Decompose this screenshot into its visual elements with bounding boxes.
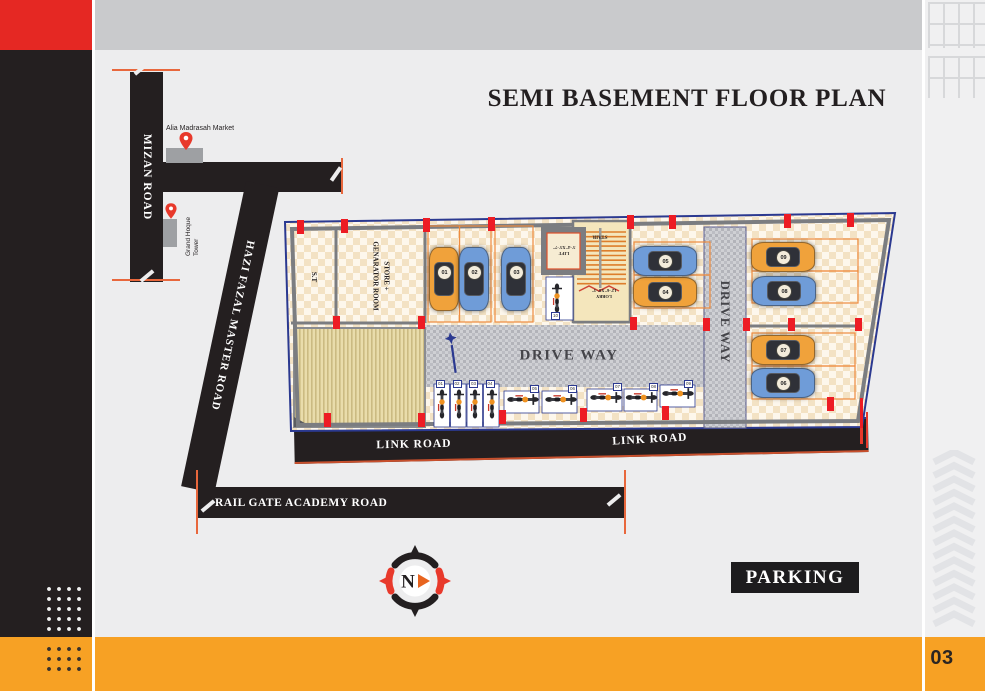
parking-badge: PARKING bbox=[731, 562, 859, 593]
car-ramp bbox=[294, 328, 425, 427]
bike-01 bbox=[435, 386, 449, 429]
road-end-marker bbox=[341, 158, 343, 194]
grid-pattern-top bbox=[928, 2, 985, 48]
car-number: 01 bbox=[437, 265, 452, 280]
bike-number: 08 bbox=[649, 383, 658, 391]
bike-07 bbox=[589, 391, 623, 409]
link-road-label-left: LINK ROAD bbox=[376, 437, 451, 451]
divider-line-left bbox=[92, 0, 95, 691]
room-label-store-line2: GENARATOR ROOM bbox=[371, 241, 382, 310]
bike-number: 05 bbox=[530, 385, 539, 393]
bike-09 bbox=[661, 387, 695, 405]
driveway-label-horizontal: DRIVE WAY bbox=[520, 348, 619, 365]
lobby-label-line2: 12'-6"X8'-3" bbox=[592, 287, 617, 293]
bike-number: 09 bbox=[684, 380, 693, 388]
divider-line-right bbox=[922, 0, 925, 691]
mizan-road: MIZAN ROAD bbox=[130, 72, 163, 282]
top-gray-band bbox=[95, 0, 922, 50]
chevron-pattern bbox=[930, 450, 978, 628]
brochure-page: SEMI BASEMENT FLOOR PLAN MIZAN ROAD HAZI… bbox=[0, 0, 985, 691]
bike-06 bbox=[544, 393, 578, 411]
car-spot-03: 03 bbox=[501, 247, 531, 311]
bike-08 bbox=[625, 391, 658, 409]
compass-icon: N bbox=[378, 544, 452, 618]
car-spot-04: 04 bbox=[633, 277, 697, 307]
car-spot-09: 09 bbox=[751, 242, 815, 272]
bike-number: 02 bbox=[453, 380, 462, 388]
page-number: 03 bbox=[927, 647, 957, 670]
map-pin-icon bbox=[165, 203, 177, 219]
rail-gate-academy-road: RAIL GATE ACADEMY ROAD bbox=[197, 487, 625, 518]
lift-label-line1: LIFT bbox=[553, 250, 576, 256]
room-label-store-line1: STORE + bbox=[381, 241, 392, 310]
dot-pattern-white bbox=[44, 584, 85, 634]
car-spot-05: 05 bbox=[633, 246, 697, 276]
bike-number: 04 bbox=[486, 380, 495, 388]
stair-label: STAIR bbox=[593, 234, 608, 239]
tower-building bbox=[163, 219, 177, 247]
bike-04 bbox=[485, 386, 499, 429]
car-spot-02: 02 bbox=[459, 247, 489, 311]
bike-number: 06 bbox=[568, 385, 577, 393]
driveway-label-vertical: DRIVE WAY bbox=[717, 280, 733, 363]
car-spot-08: 08 bbox=[752, 276, 816, 306]
car-spot-01: 01 bbox=[429, 247, 459, 311]
lobby-label-line1: LOBBY bbox=[592, 293, 617, 299]
road-end-marker bbox=[624, 470, 626, 534]
bike-05 bbox=[506, 393, 540, 411]
hazi-fazal-road-label: HAZI FAZAL MASTER ROAD bbox=[209, 239, 257, 411]
bike-number: 01 bbox=[436, 380, 445, 388]
tower-label: Grand Hoque Tower bbox=[185, 210, 201, 256]
page-title: SEMI BASEMENT FLOOR PLAN bbox=[455, 85, 919, 113]
car-number: 09 bbox=[776, 250, 791, 265]
corner-red-square bbox=[0, 0, 92, 50]
road-end-marker bbox=[196, 470, 198, 534]
car-number: 03 bbox=[509, 265, 524, 280]
rail-gate-road-label: RAIL GATE ACADEMY ROAD bbox=[215, 497, 387, 509]
market-building bbox=[166, 148, 203, 163]
car-number: 04 bbox=[658, 285, 673, 300]
car-number: 05 bbox=[658, 254, 673, 269]
car-number: 07 bbox=[776, 343, 791, 358]
mizan-road-label: MIZAN ROAD bbox=[141, 134, 153, 220]
bike-number: 03 bbox=[469, 380, 478, 388]
dot-pattern-dark bbox=[44, 644, 85, 674]
car-spot-07: 07 bbox=[751, 335, 815, 365]
map-pin-icon bbox=[179, 132, 193, 150]
bike-02 bbox=[452, 386, 466, 429]
room-label-st: S.T bbox=[310, 272, 318, 282]
bike-number: 10 bbox=[551, 312, 560, 320]
compass-north-letter: N bbox=[401, 572, 415, 593]
bike-03 bbox=[468, 386, 482, 429]
footer-orange-band bbox=[0, 637, 985, 691]
market-label: Alia Madrasah Market bbox=[166, 125, 234, 132]
road-end-marker bbox=[112, 69, 180, 71]
grid-pattern-second bbox=[928, 56, 985, 98]
bike-number: 07 bbox=[613, 383, 622, 391]
lift-label-line2: 5'-4"X5'-7" bbox=[553, 244, 576, 250]
car-spot-06: 06 bbox=[751, 368, 815, 398]
car-number: 08 bbox=[777, 284, 792, 299]
car-number: 02 bbox=[467, 265, 482, 280]
car-number: 06 bbox=[776, 376, 791, 391]
